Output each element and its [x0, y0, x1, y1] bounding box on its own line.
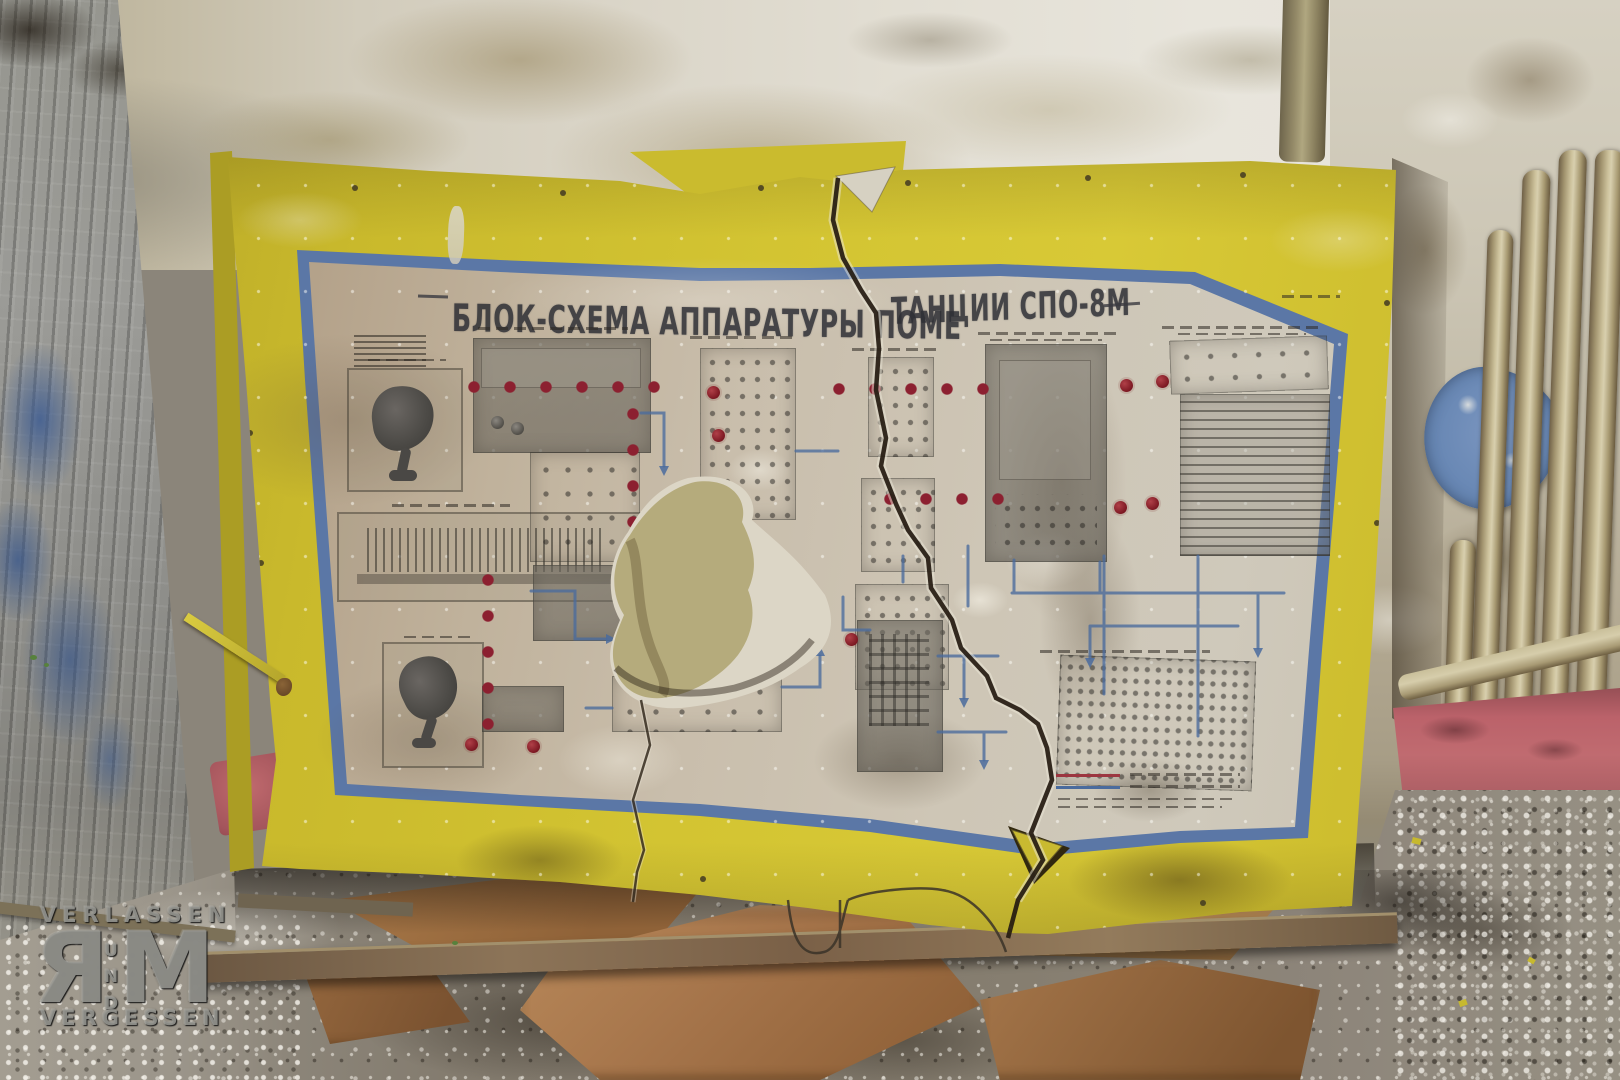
top-tear-gap	[836, 167, 895, 212]
photo-scene: БЛОК-СХЕМА АППАРАТУРЫ ПОМЕ ТАНЦИИ СПО-8М	[0, 0, 1620, 1080]
watermark-line-bottom: VERGESSEN	[40, 1006, 225, 1030]
watermark-letter-m: M	[118, 920, 216, 1018]
damage-overlay	[0, 0, 1620, 1080]
floor-wire	[788, 888, 1006, 953]
crack-torn-edge	[833, 178, 1052, 900]
torn-hole	[610, 476, 831, 708]
watermark-letter-ya: Я	[34, 920, 109, 1018]
